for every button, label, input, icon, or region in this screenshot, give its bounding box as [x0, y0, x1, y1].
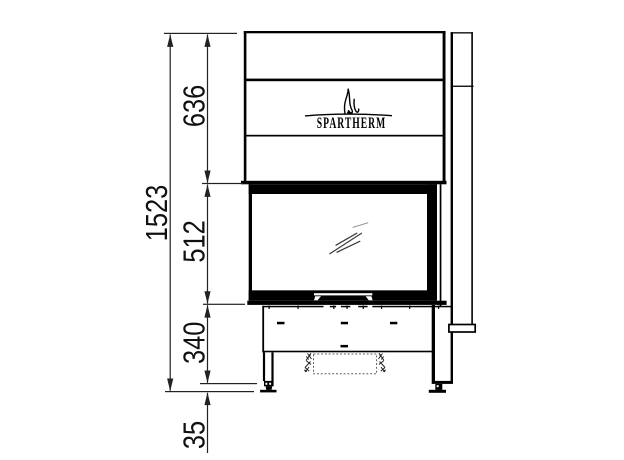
svg-text:1523: 1523 — [140, 185, 175, 242]
svg-text:636: 636 — [177, 85, 212, 127]
svg-text:340: 340 — [177, 322, 212, 364]
svg-text:35: 35 — [177, 421, 212, 449]
svg-text:512: 512 — [177, 220, 212, 262]
svg-text:SPARTHERM: SPARTHERM — [317, 114, 386, 132]
